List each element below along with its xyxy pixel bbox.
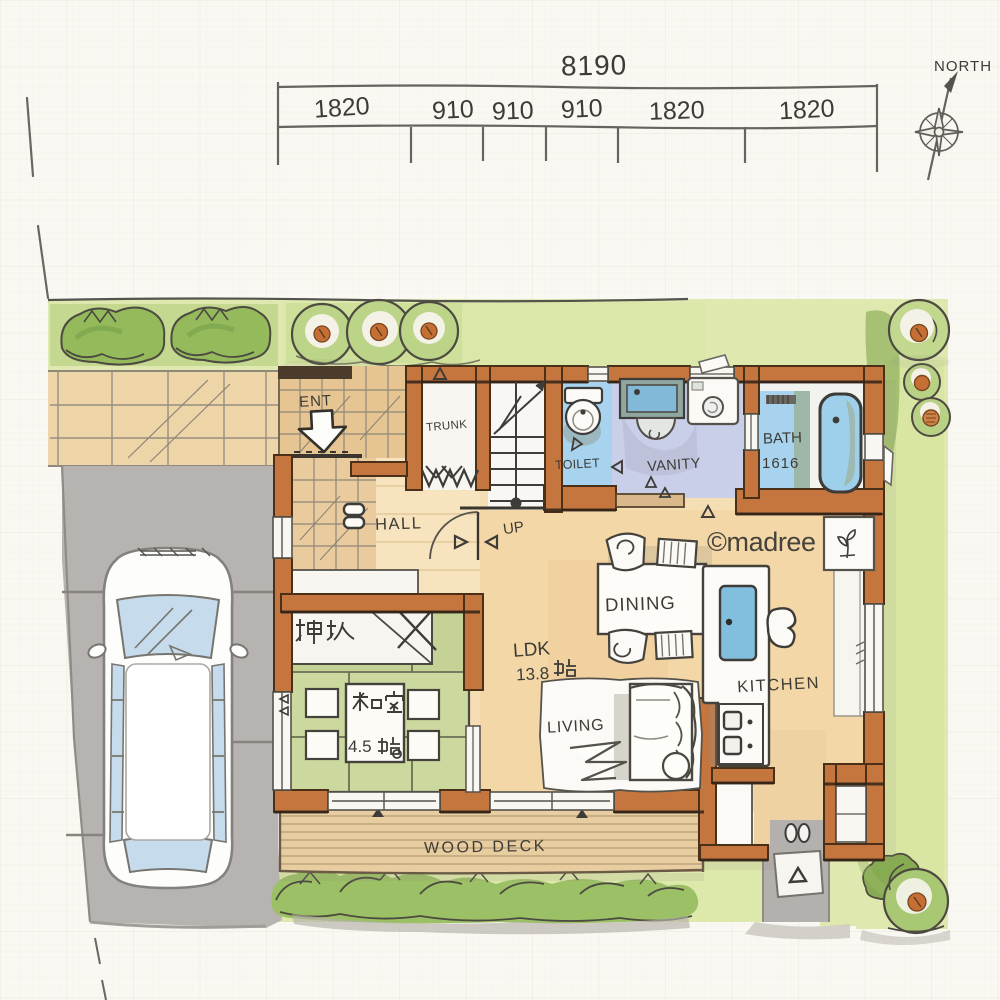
svg-text:NORTH: NORTH	[934, 58, 992, 75]
svg-text:910: 910	[560, 94, 603, 124]
svg-text:1820: 1820	[313, 92, 370, 124]
svg-text:910: 910	[431, 95, 474, 125]
svg-text:910: 910	[491, 96, 534, 125]
svg-text:©madree: ©madree	[707, 527, 816, 557]
svg-text:8190: 8190	[561, 49, 628, 81]
svg-text:1820: 1820	[778, 94, 835, 125]
svg-text:ENT: ENT	[299, 392, 333, 411]
svg-text:4.5: 4.5	[348, 737, 372, 756]
svg-text:DINING: DINING	[605, 592, 676, 615]
svg-text:WOOD DECK: WOOD DECK	[424, 838, 547, 857]
svg-text:UP: UP	[502, 518, 525, 538]
svg-text:LDK: LDK	[512, 638, 551, 662]
svg-text:HALL: HALL	[375, 514, 423, 534]
svg-text:BATH: BATH	[763, 429, 802, 447]
svg-text:1616: 1616	[762, 455, 799, 472]
svg-text:TOILET: TOILET	[555, 456, 601, 472]
svg-text:1820: 1820	[648, 96, 705, 126]
svg-text:LIVING: LIVING	[547, 717, 605, 737]
svg-text:13.8: 13.8	[516, 664, 550, 685]
